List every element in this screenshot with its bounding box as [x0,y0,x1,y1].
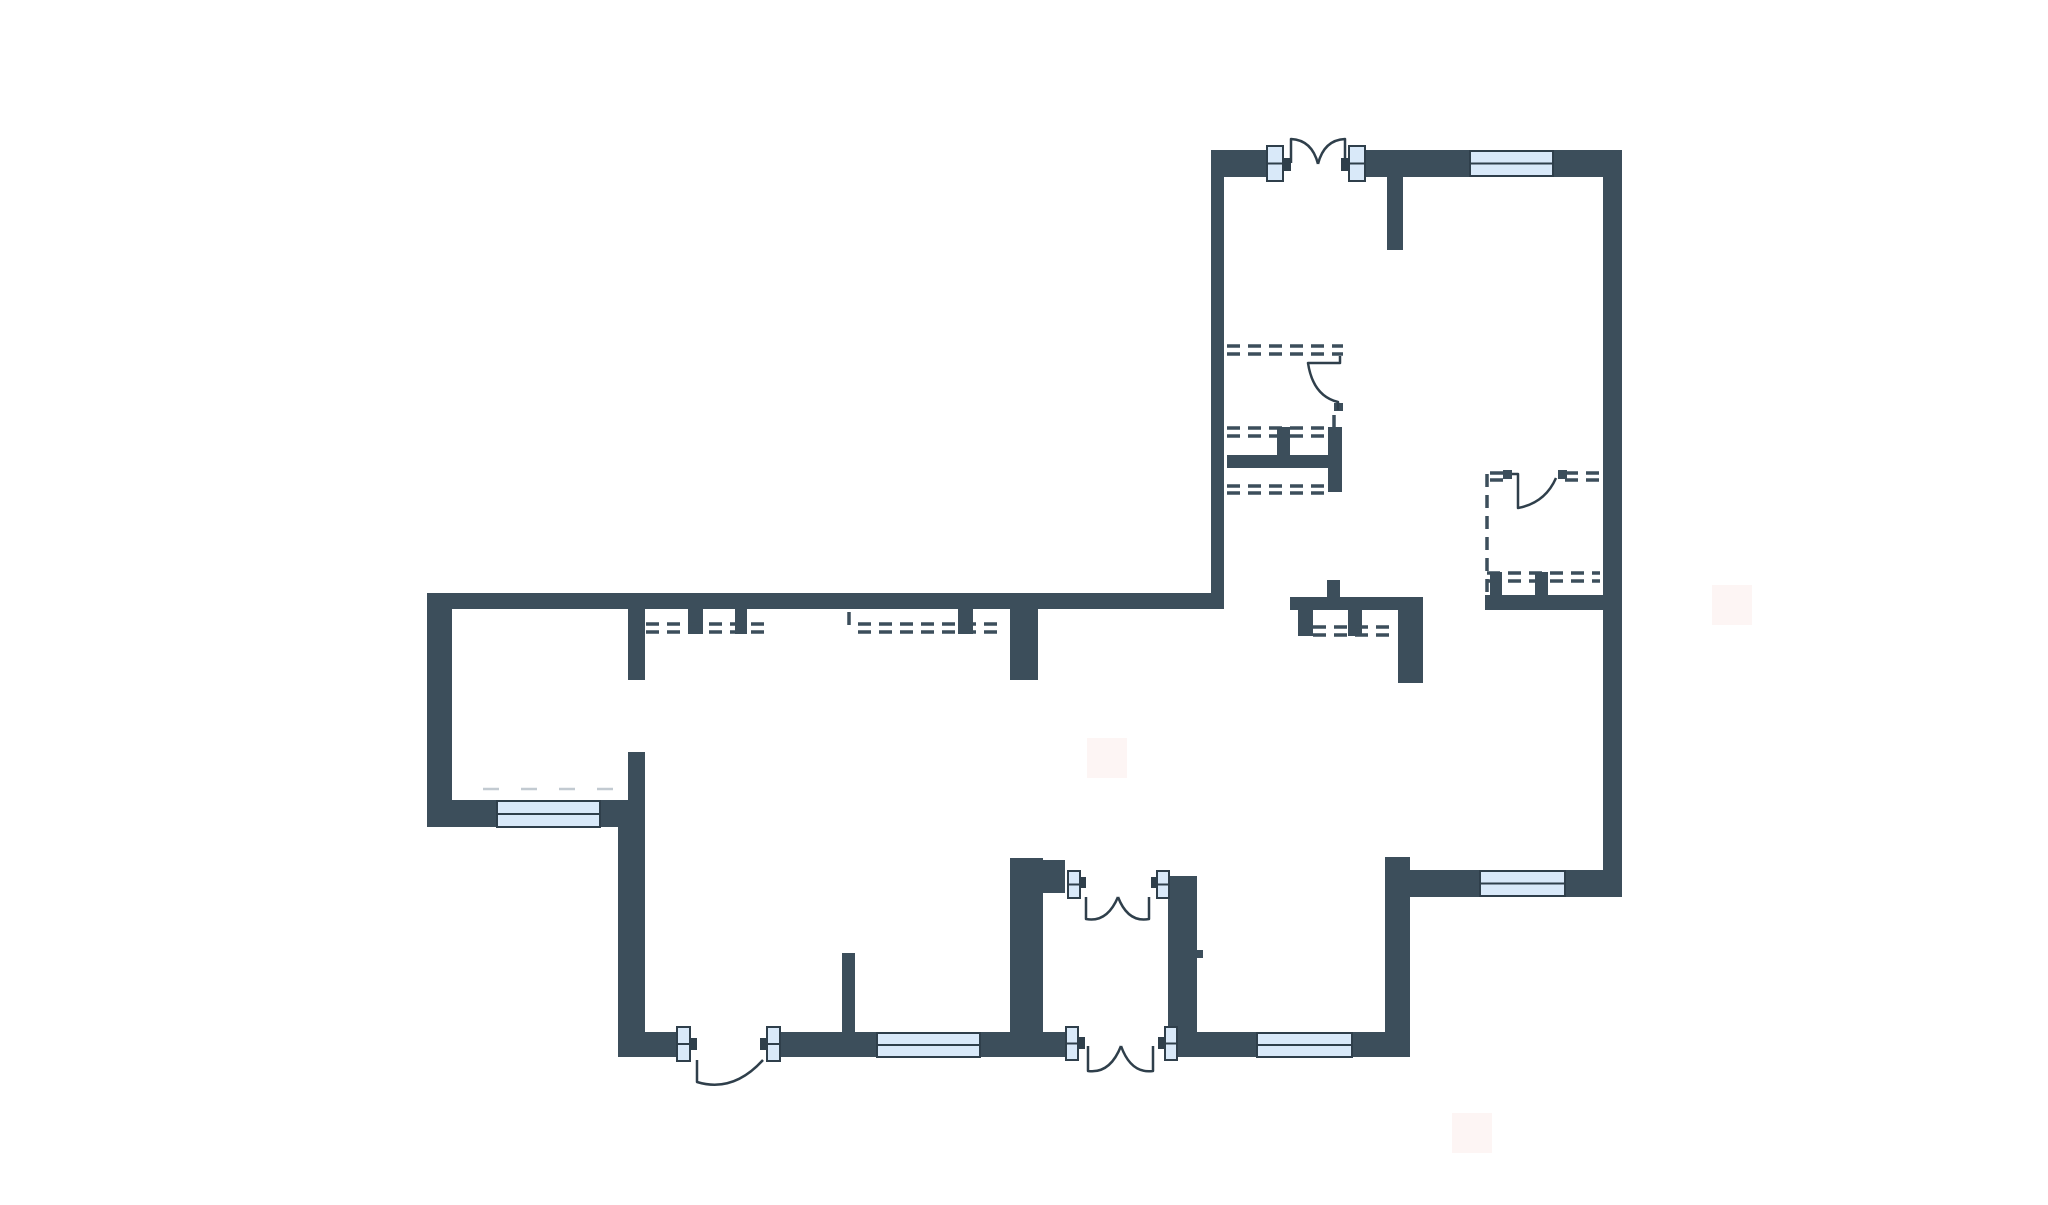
entry-door-swing-right [1318,139,1345,164]
wc-stub [1277,427,1290,455]
door-hinge-nub [1158,1037,1165,1049]
island-down-stub-b [1348,610,1362,636]
floor-plan-canvas [0,0,2048,1205]
east-outer-wall [1603,150,1622,897]
middle-room-east-wall [1385,857,1410,1057]
west-outer-wall [427,593,452,827]
island-corner-block [1398,597,1423,683]
bottomleft-room-east-wall [1010,858,1043,1032]
door-hinge-nub [760,1038,767,1050]
wc-east-wall [1328,427,1342,492]
bath-bottom-wall [1485,595,1603,610]
vestibule-wall-notch [1197,950,1203,958]
island-down-stub-a [1298,610,1313,636]
vestibule-top-door-swing-left [1086,897,1118,920]
vestibule-bottom-door-swing-right [1121,1046,1153,1071]
faint-marker-square [1712,585,1752,625]
bottomleft-door-swing [697,1060,763,1085]
bath-door-swing [1512,474,1556,508]
wc-bottom-wall [1227,455,1335,468]
entry-stub-wall [1387,177,1403,250]
north-wall-left-section [427,593,1224,609]
wc-door-swing [1308,356,1340,410]
floor-plan [0,0,2048,1205]
vestibule-arm [1043,860,1065,893]
island-up-stub [1327,580,1340,597]
bath-stub-a [1490,572,1502,595]
hall-center-pier [1010,609,1038,680]
vestibule-east-wall [1168,876,1197,1035]
door-hinge-nub [1151,877,1157,888]
bottom-left-outer-wall [618,800,645,1057]
faint-marker-square [1087,738,1127,778]
door-hinge-nub [690,1038,697,1050]
vestibule-bottom-door-swing-left [1088,1046,1121,1071]
bath-door-hinge-block-a [1503,470,1512,479]
vestibule-top-door-swing-right [1118,897,1149,920]
entry-door-swing-left [1291,139,1318,164]
door-hinge-nub [1080,877,1086,888]
south-wall-segment-a [618,1032,677,1057]
door-hinge-nub [1078,1037,1085,1049]
left-room-divider-upper [628,609,645,680]
island-horizontal-wall [1290,597,1398,610]
faint-marker-square [1452,1113,1492,1153]
upper-block-west-wall [1211,150,1224,609]
bath-stub-b [1535,572,1548,595]
bottomleft-room-small-stub [842,953,855,1032]
